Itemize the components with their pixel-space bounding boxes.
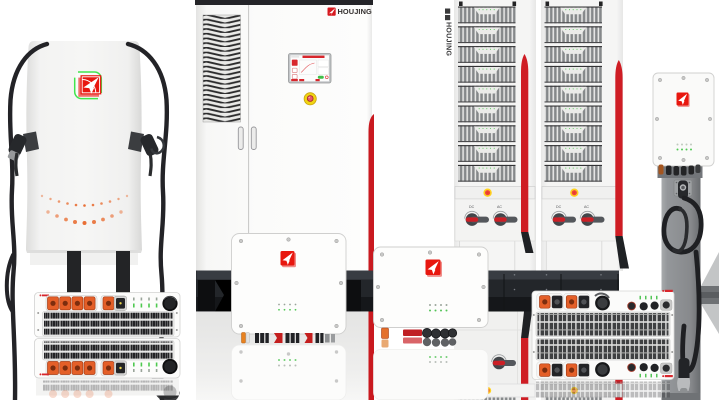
- svg-text:HOUJING: HOUJING: [445, 22, 452, 57]
- svg-text:DC: DC: [469, 205, 475, 209]
- svg-text:AC: AC: [584, 205, 589, 209]
- svg-text:DC: DC: [556, 205, 562, 209]
- svg-text:AC: AC: [497, 205, 502, 209]
- svg-text:HOUJING: HOUJING: [338, 7, 373, 16]
